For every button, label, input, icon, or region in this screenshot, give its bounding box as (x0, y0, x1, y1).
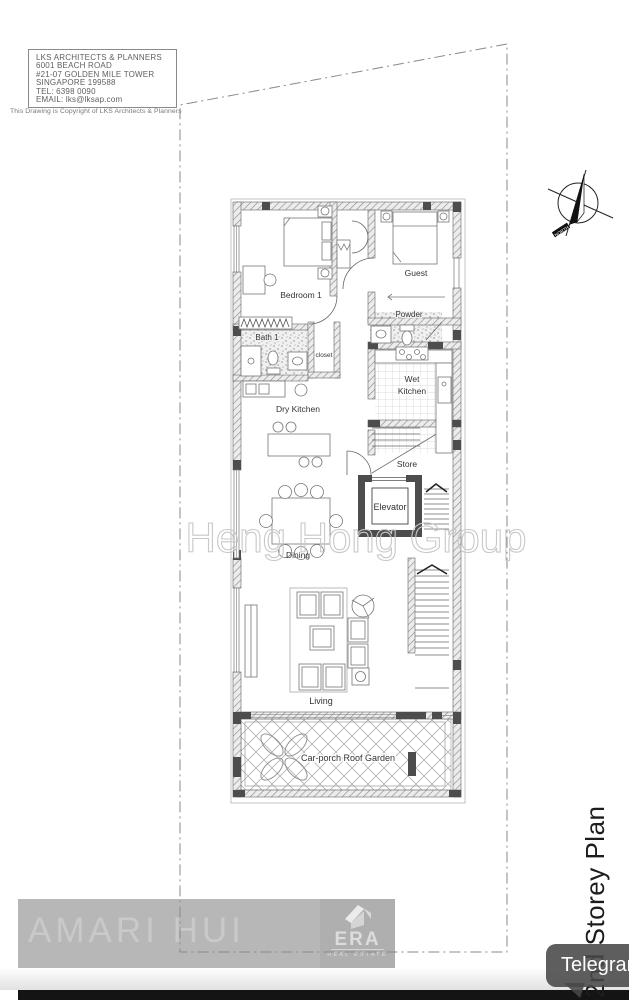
window-midlines (237, 226, 454, 718)
era-house-icon (335, 899, 381, 931)
staircase (415, 484, 449, 688)
room-label-living: Living (309, 696, 333, 706)
architect-title-block: LKS ARCHITECTS & PLANNERS 6001 BEACH ROA… (28, 49, 177, 108)
room-label-guest: Guest (405, 268, 428, 278)
room-label-wet-kitchen-2: Kitchen (398, 386, 427, 396)
garden-ornament (257, 730, 311, 784)
room-label-wet-kitchen-1: Wet (405, 374, 421, 384)
era-brand-text: ERA (331, 931, 383, 950)
room-label-dry-kitchen: Dry Kitchen (276, 404, 320, 414)
bath1-fixtures (241, 346, 307, 376)
room-label-closet: closet (316, 352, 333, 359)
telegram-button[interactable]: Telegram (546, 944, 629, 987)
wardrobe (239, 317, 292, 329)
room-label-elevator: Elevator (373, 502, 406, 512)
bedroom1-furniture (243, 206, 350, 294)
wall-columns (233, 202, 461, 797)
bottom-bar (18, 990, 629, 1000)
telegram-button-tail (564, 983, 585, 998)
era-logo: ERA REAL ESTATE (320, 899, 395, 968)
room-label-dining: Dining (286, 550, 310, 560)
bath1-floor (239, 326, 307, 374)
north-arrow-icon: NORTH (548, 170, 613, 238)
compass-north-label: NORTH (554, 225, 570, 238)
room-label-carporch: Car-porch Roof Garden (301, 753, 395, 763)
dining-set (260, 484, 343, 560)
property-boundary-line (180, 44, 507, 952)
door-swings (309, 221, 442, 340)
store-area (347, 427, 448, 475)
copyright-note: This Drawing is Copyright of LKS Archite… (10, 108, 182, 115)
watermark-heng-hong-group: Heng Hong Group (186, 514, 527, 561)
roof-garden-floor (241, 719, 451, 790)
floor-plan-drawing: NORTH (0, 0, 629, 1000)
windows (234, 226, 459, 672)
elevator-shaft (358, 475, 422, 537)
telegram-button-label: Telegram (561, 954, 629, 977)
wet-kitchen-furniture (375, 347, 452, 453)
bottom-fade (0, 969, 629, 990)
room-label-bath1: Bath 1 (255, 333, 279, 342)
room-label-bedroom1: Bedroom 1 (280, 290, 322, 300)
guest-furniture (381, 211, 449, 300)
walls (233, 202, 461, 797)
wet-kitchen-floor (375, 350, 453, 453)
powder-floor (370, 312, 442, 350)
era-tagline-text: REAL ESTATE (327, 952, 387, 958)
architect-email: EMAIL: lks@lksap.com (36, 96, 176, 104)
room-labels: Bedroom 1 Guest Powder Bath 1 closet Wet… (255, 268, 428, 763)
watermark-amari-hui: AMARI HUI (28, 911, 245, 951)
living-furniture (245, 588, 374, 692)
room-label-store: Store (397, 459, 418, 469)
dry-kitchen-furniture (243, 381, 330, 467)
powder-fixtures (371, 325, 414, 345)
room-label-powder: Powder (395, 310, 422, 319)
